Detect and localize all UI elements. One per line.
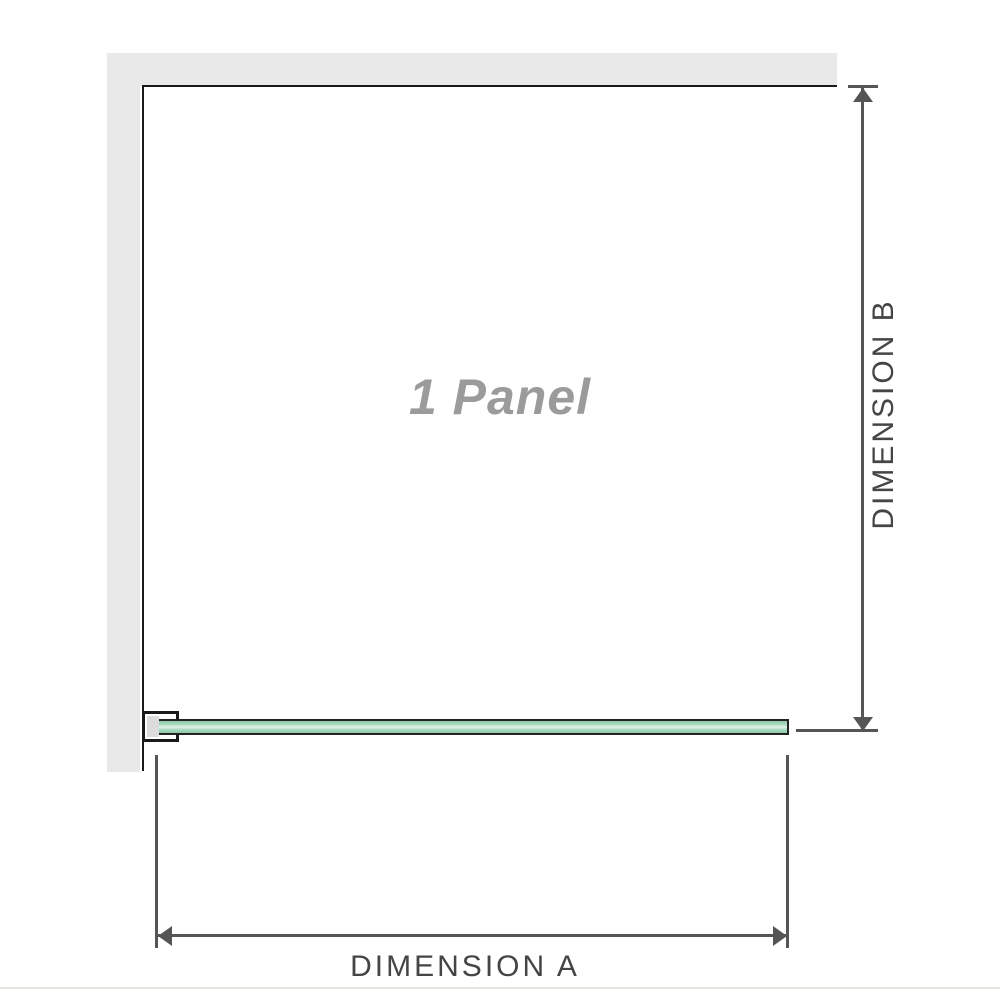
shower-panel-diagram: 1 Panel DIMENSION B DIMENSION A xyxy=(0,0,1000,1000)
panel-outline-top xyxy=(142,85,837,87)
extension-line-right xyxy=(786,755,789,948)
glass-panel xyxy=(154,719,789,735)
arrow-right-icon xyxy=(773,926,787,946)
extension-line-left xyxy=(155,755,158,948)
bottom-hairline xyxy=(0,987,1000,989)
panel-outline-left xyxy=(142,85,144,771)
dimension-b-line xyxy=(861,88,864,731)
arrow-down-icon xyxy=(853,717,873,731)
arrow-left-icon xyxy=(158,926,172,946)
wall-left-strip xyxy=(107,53,140,772)
arrow-up-icon xyxy=(853,88,873,102)
dimension-a-label: DIMENSION A xyxy=(165,950,765,984)
dimension-a-line xyxy=(158,934,787,937)
wall-top-strip xyxy=(108,53,837,86)
panel-count-label: 1 Panel xyxy=(300,368,700,426)
bracket-pad xyxy=(147,716,159,737)
